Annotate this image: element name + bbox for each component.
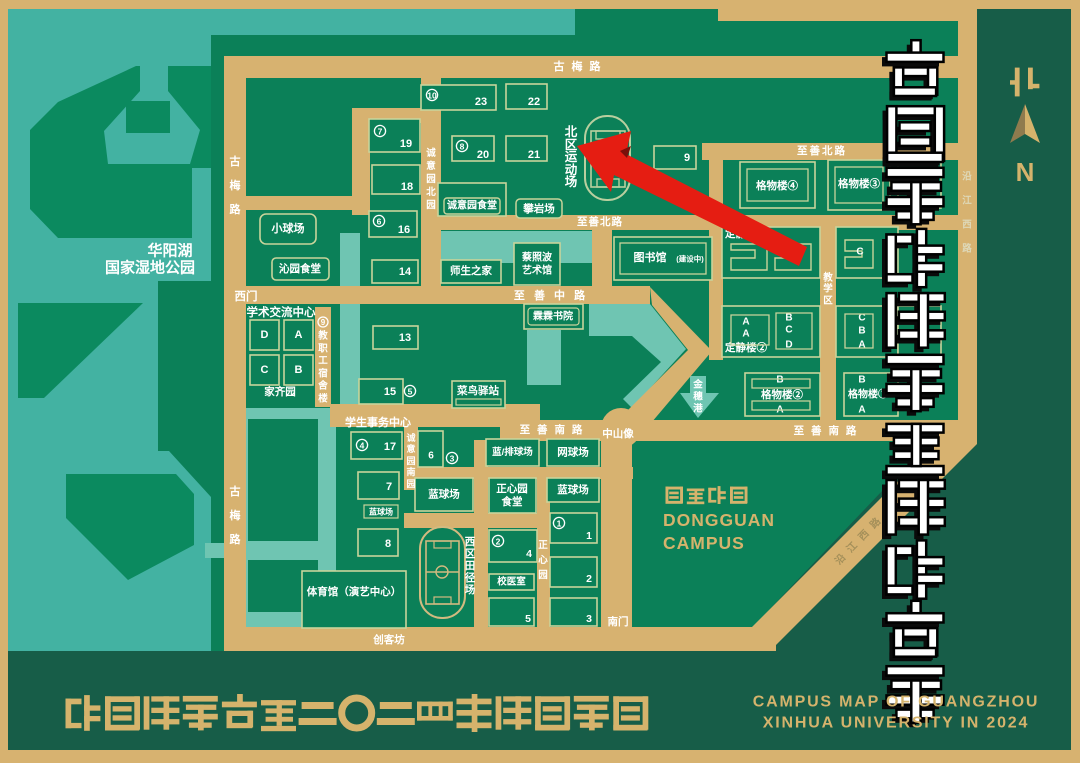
svg-text:蔡照波: 蔡照波: [521, 251, 553, 264]
svg-text:西: 西: [962, 220, 972, 231]
svg-text:23: 23: [475, 96, 487, 108]
svg-text:DONGGUAN: DONGGUAN: [663, 510, 775, 530]
svg-text:学生事务中心: 学生事务中心: [345, 415, 411, 429]
svg-text:心: 心: [538, 555, 548, 566]
svg-text:华阳湖: 华阳湖: [147, 242, 192, 260]
svg-text:南门: 南门: [608, 615, 629, 628]
svg-text:港: 港: [693, 403, 703, 415]
svg-text:西: 西: [465, 536, 476, 548]
svg-text:16: 16: [398, 224, 410, 236]
svg-text:至 善 南 路: 至 善 南 路: [794, 424, 859, 437]
svg-text:XINHUA UNIVERSITY IN 2024: XINHUA UNIVERSITY IN 2024: [763, 715, 1029, 732]
svg-text:穗: 穗: [693, 391, 703, 403]
svg-text:体育馆（演艺中心）: 体育馆（演艺中心）: [307, 585, 402, 598]
svg-text:7: 7: [378, 126, 383, 136]
svg-text:梅: 梅: [230, 178, 241, 192]
svg-text:园: 园: [426, 200, 436, 211]
svg-text:9: 9: [321, 318, 326, 327]
svg-text:家齐园: 家齐园: [264, 385, 296, 398]
svg-text:南: 南: [406, 466, 415, 477]
svg-text:10: 10: [427, 90, 437, 100]
svg-text:至善北路: 至善北路: [797, 144, 847, 157]
svg-text:19: 19: [400, 138, 412, 150]
svg-text:7: 7: [386, 481, 392, 493]
svg-text:梅: 梅: [230, 508, 241, 522]
svg-text:4: 4: [360, 440, 365, 450]
svg-text:格物楼③: 格物楼③: [838, 177, 880, 190]
svg-text:20: 20: [477, 149, 489, 161]
svg-text:A: A: [858, 405, 865, 416]
svg-text:1: 1: [586, 530, 592, 542]
svg-text:3: 3: [450, 453, 455, 463]
svg-text:8: 8: [460, 141, 465, 151]
svg-text:B: B: [785, 313, 792, 324]
svg-text:15: 15: [384, 386, 396, 398]
svg-text:6: 6: [377, 216, 382, 226]
svg-text:诚: 诚: [406, 432, 415, 443]
svg-text:霖霖书院: 霖霖书院: [533, 310, 573, 323]
svg-text:N: N: [1016, 157, 1035, 187]
svg-text:师生之家: 师生之家: [450, 264, 492, 277]
svg-text:工: 工: [318, 356, 328, 367]
svg-text:18: 18: [401, 181, 413, 193]
svg-text:8: 8: [385, 538, 391, 550]
svg-text:21: 21: [528, 149, 540, 161]
svg-text:(建设中): (建设中): [676, 254, 704, 264]
svg-text:B: B: [858, 375, 865, 386]
svg-text:6: 6: [428, 451, 434, 462]
svg-text:古: 古: [230, 484, 241, 498]
svg-text:网球场: 网球场: [557, 446, 589, 459]
svg-text:C: C: [856, 247, 863, 258]
svg-text:CAMPUS MAP OF GUANGZHOU: CAMPUS MAP OF GUANGZHOU: [753, 694, 1039, 711]
svg-text:楼: 楼: [318, 392, 328, 404]
svg-text:图书馆: 图书馆: [634, 250, 667, 264]
svg-text:蓝球场: 蓝球场: [557, 483, 589, 496]
svg-text:1: 1: [557, 518, 562, 528]
svg-text:校医室: 校医室: [497, 576, 526, 588]
svg-text:14: 14: [399, 266, 412, 278]
svg-text:B: B: [776, 375, 783, 386]
svg-text:场: 场: [465, 583, 476, 596]
svg-text:诚意园食堂: 诚意园食堂: [447, 199, 497, 212]
svg-text:宿: 宿: [318, 367, 328, 379]
svg-text:格物楼④: 格物楼④: [756, 179, 798, 192]
svg-text:食堂: 食堂: [501, 495, 523, 508]
svg-text:5: 5: [408, 386, 413, 396]
svg-text:22: 22: [528, 96, 540, 108]
svg-text:学术交流中心: 学术交流中心: [247, 305, 316, 319]
svg-text:A: A: [742, 317, 749, 328]
svg-text:园: 园: [406, 479, 415, 489]
svg-text:正心园: 正心园: [496, 483, 528, 495]
svg-text:教: 教: [822, 271, 833, 283]
svg-text:古: 古: [230, 154, 241, 168]
svg-text:2: 2: [586, 573, 592, 585]
svg-text:至 善 中 路: 至 善 中 路: [514, 288, 588, 302]
svg-text:蓝球场: 蓝球场: [369, 507, 393, 517]
svg-text:蓝/排球场: 蓝/排球场: [492, 446, 533, 458]
svg-text:古 梅 路: 古 梅 路: [553, 59, 602, 73]
svg-text:园: 园: [426, 174, 436, 185]
svg-text:国家湿地公园: 国家湿地公园: [105, 259, 195, 277]
svg-text:9: 9: [684, 152, 690, 164]
svg-text:D: D: [261, 329, 269, 341]
svg-text:蓝球场: 蓝球场: [428, 488, 460, 501]
svg-text:径: 径: [465, 571, 476, 584]
svg-text:场: 场: [565, 175, 578, 189]
svg-text:沁园食堂: 沁园食堂: [279, 262, 321, 275]
svg-text:菜鸟驿站: 菜鸟驿站: [456, 384, 499, 397]
svg-text:13: 13: [399, 332, 411, 344]
svg-text:舍: 舍: [317, 380, 328, 392]
svg-text:C: C: [261, 364, 269, 376]
svg-text:C: C: [785, 325, 792, 336]
svg-text:A: A: [742, 329, 749, 340]
svg-text:4: 4: [526, 548, 532, 560]
svg-text:沿: 沿: [962, 171, 972, 183]
svg-text:园: 园: [406, 456, 415, 466]
svg-text:创客坊: 创客坊: [372, 633, 405, 646]
svg-text:17: 17: [384, 441, 396, 453]
svg-text:路: 路: [230, 532, 242, 546]
svg-text:园: 园: [538, 570, 548, 581]
svg-text:学: 学: [823, 283, 833, 295]
svg-text:3: 3: [586, 613, 592, 625]
svg-text:攀岩场: 攀岩场: [522, 202, 555, 215]
svg-text:金: 金: [692, 379, 703, 391]
svg-text:艺术馆: 艺术馆: [522, 264, 552, 277]
svg-text:B: B: [858, 326, 865, 337]
svg-text:田: 田: [465, 560, 476, 572]
svg-text:北: 北: [426, 186, 436, 198]
svg-text:意: 意: [426, 160, 436, 172]
svg-text:诚: 诚: [426, 147, 436, 159]
svg-text:正: 正: [538, 540, 548, 551]
svg-text:路: 路: [962, 243, 972, 255]
svg-text:教: 教: [317, 330, 328, 342]
svg-text:CAMPUS: CAMPUS: [663, 533, 745, 553]
svg-text:意: 意: [406, 443, 415, 454]
svg-text:区: 区: [823, 295, 833, 306]
svg-text:职: 职: [318, 343, 328, 354]
svg-text:B: B: [295, 364, 303, 376]
svg-text:A: A: [858, 340, 865, 351]
svg-text:江: 江: [962, 195, 972, 207]
svg-text:区: 区: [465, 548, 476, 560]
svg-text:至善北路: 至善北路: [577, 215, 623, 228]
svg-text:5: 5: [525, 613, 531, 625]
svg-text:格物楼②: 格物楼②: [761, 388, 803, 401]
svg-text:至 善 南 路: 至 善 南 路: [520, 423, 585, 436]
svg-text:2: 2: [496, 536, 501, 546]
svg-text:西门: 西门: [235, 289, 258, 303]
svg-text:小球场: 小球场: [271, 221, 305, 235]
svg-text:路: 路: [230, 202, 242, 216]
svg-text:A: A: [295, 329, 303, 341]
svg-text:中山像: 中山像: [602, 427, 634, 440]
